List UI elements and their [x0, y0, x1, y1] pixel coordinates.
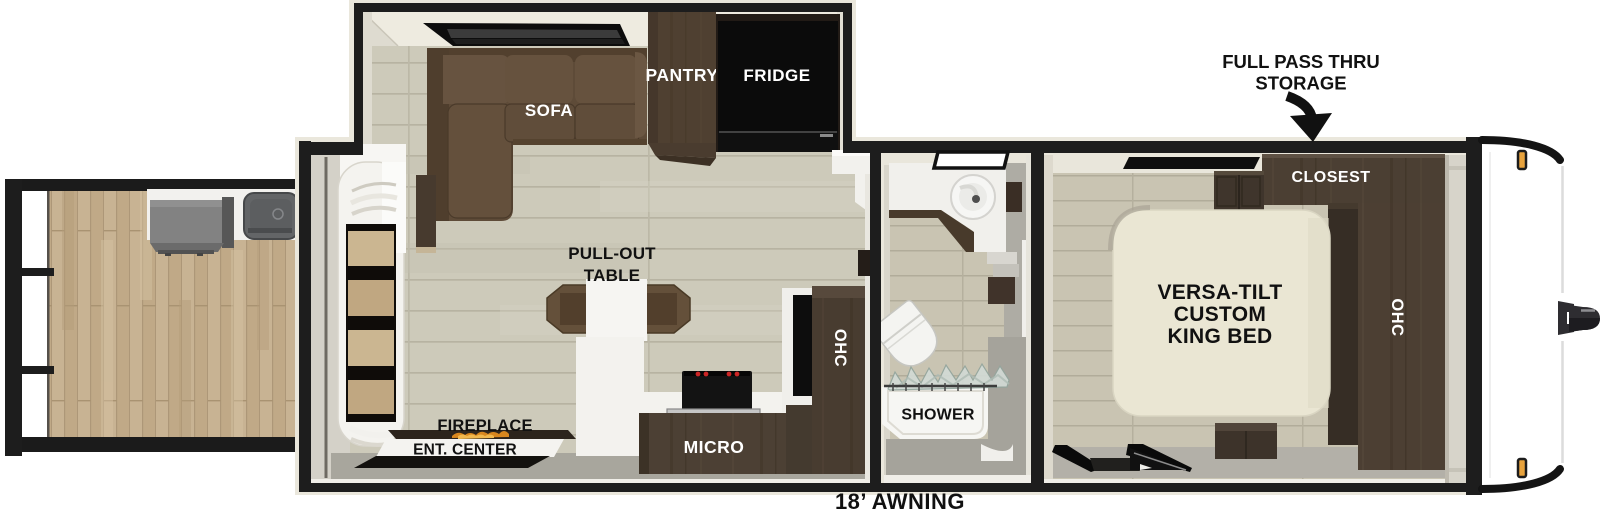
svg-text:KING BED: KING BED	[1167, 325, 1272, 348]
svg-text:PULL-OUT: PULL-OUT	[568, 244, 656, 263]
svg-text:FRIDGE: FRIDGE	[743, 66, 810, 85]
svg-text:FIREPLACE: FIREPLACE	[437, 417, 532, 435]
svg-text:OHC: OHC	[831, 329, 849, 367]
svg-text:MICRO: MICRO	[684, 437, 745, 457]
svg-text:18’ AWNING: 18’ AWNING	[835, 489, 965, 510]
svg-text:CUSTOM: CUSTOM	[1174, 303, 1266, 326]
svg-text:CLOSEST: CLOSEST	[1291, 169, 1370, 186]
svg-text:STORAGE: STORAGE	[1255, 73, 1346, 94]
svg-text:FULL PASS THRU: FULL PASS THRU	[1222, 51, 1380, 72]
svg-text:ENT. CENTER: ENT. CENTER	[413, 442, 517, 459]
svg-text:VERSA-TILT: VERSA-TILT	[1157, 281, 1282, 304]
svg-text:SOFA: SOFA	[525, 101, 573, 120]
svg-text:TABLE: TABLE	[584, 266, 640, 285]
svg-text:PANTRY: PANTRY	[646, 65, 719, 85]
svg-text:OHC: OHC	[1388, 298, 1406, 336]
svg-text:SHOWER: SHOWER	[901, 407, 974, 424]
